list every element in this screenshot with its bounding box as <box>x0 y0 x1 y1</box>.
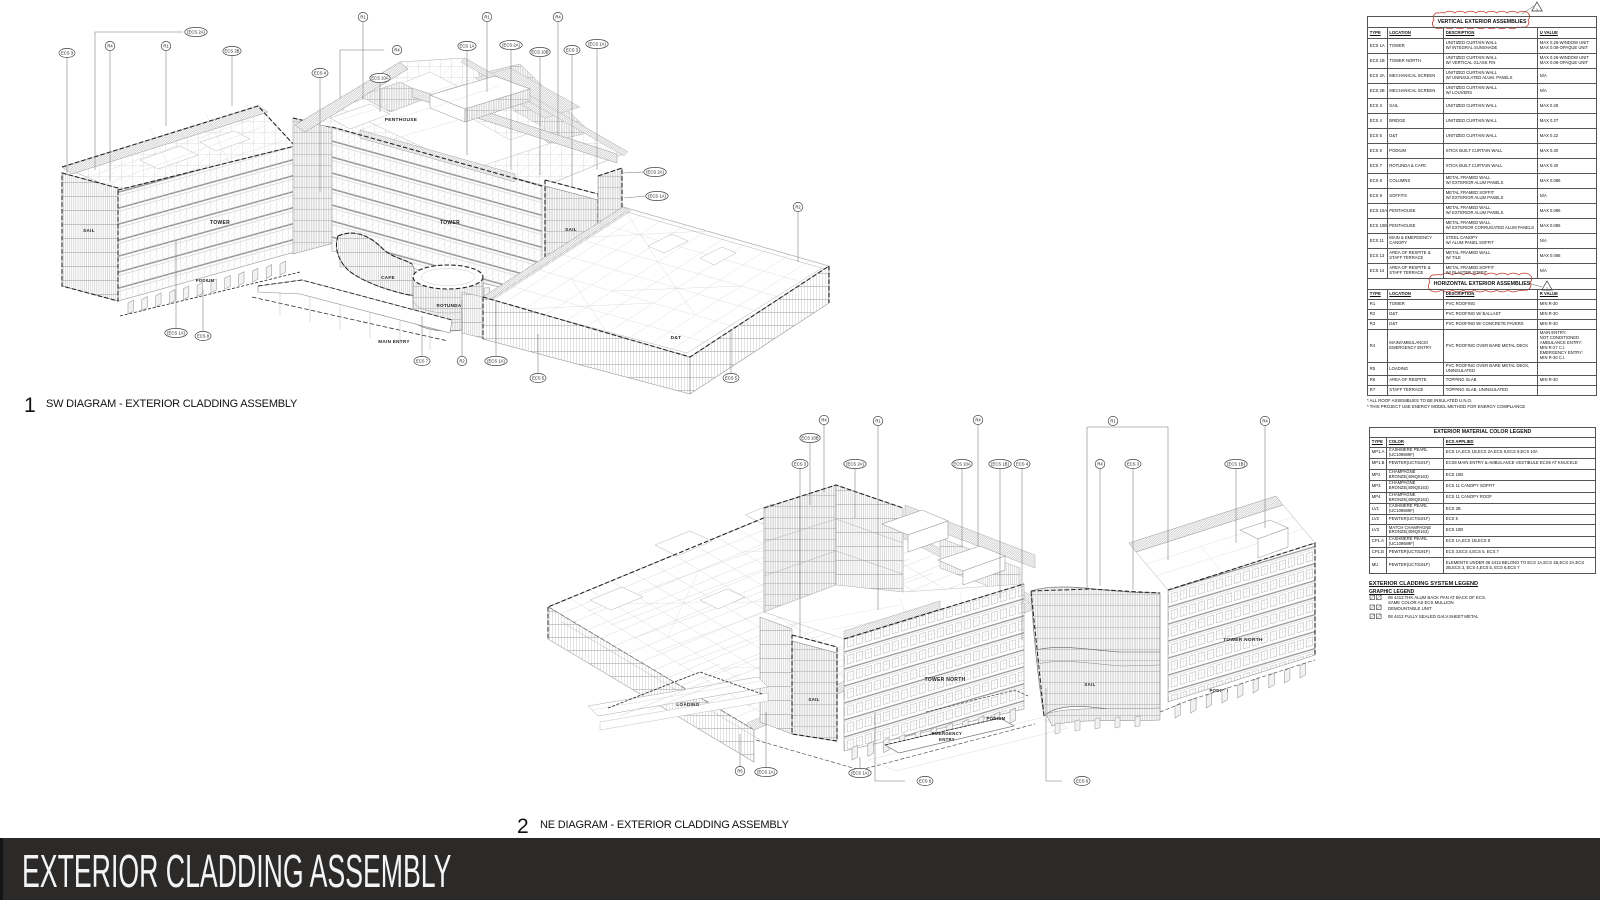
svg-text:(ECS 1B): (ECS 1B) <box>991 462 1009 467</box>
svg-text:R1: R1 <box>1110 419 1116 424</box>
svg-text:R4: R4 <box>1097 462 1103 467</box>
svg-text:MAIN ENTRY: MAIN ENTRY <box>378 339 409 344</box>
svg-text:R2: R2 <box>459 359 465 364</box>
svg-text:R4: R4 <box>394 48 400 53</box>
svg-text:ECS 10A: ECS 10A <box>953 462 970 467</box>
svg-text:(ECS 1A): (ECS 1A) <box>648 194 666 199</box>
svg-text:SAIL: SAIL <box>83 228 95 233</box>
svg-text:ECS 6: ECS 6 <box>1076 779 1089 784</box>
svg-text:SAIL: SAIL <box>808 697 819 702</box>
svg-text:EMERGENCY: EMERGENCY <box>932 731 962 736</box>
svg-text:ECS 3: ECS 3 <box>566 48 579 53</box>
svg-text:R1: R1 <box>875 419 881 424</box>
svg-text:ECS 8: ECS 8 <box>197 334 210 339</box>
svg-text:(ECS 2A): (ECS 2A) <box>646 170 664 175</box>
svg-text:R1: R1 <box>163 44 169 49</box>
svg-text:ECS 10B: ECS 10B <box>531 50 548 55</box>
svg-text:1: 1 <box>1536 7 1539 12</box>
svg-text:R4: R4 <box>975 418 981 423</box>
svg-text:(ECS 2A): (ECS 2A) <box>846 462 864 467</box>
svg-text:R5: R5 <box>737 769 743 774</box>
svg-text:ECS 3: ECS 3 <box>61 51 74 56</box>
svg-text:(ECS 1A): (ECS 1A) <box>167 331 185 336</box>
svg-text:ECS 4: ECS 4 <box>314 71 327 76</box>
svg-text:ECS 2B: ECS 2B <box>225 49 240 54</box>
svg-text:(ECS 2A): (ECS 2A) <box>187 30 205 35</box>
svg-text:ECS 1A: ECS 1A <box>460 44 475 49</box>
svg-text:(ECS 1B): (ECS 1B) <box>1227 462 1245 467</box>
svg-text:TOWER: TOWER <box>210 220 230 226</box>
svg-text:ECS 4: ECS 4 <box>1016 462 1029 467</box>
svg-text:(ECS 2A): (ECS 2A) <box>502 43 520 48</box>
svg-text:R1: R1 <box>484 15 490 20</box>
svg-text:R4: R4 <box>107 44 113 49</box>
svg-text:R2: R2 <box>795 205 801 210</box>
svg-text:D&T: D&T <box>671 335 682 341</box>
svg-text:R4: R4 <box>821 418 827 423</box>
svg-text:SAIL: SAIL <box>565 227 577 232</box>
svg-text:ECS 5: ECS 5 <box>532 376 545 381</box>
svg-text:R4: R4 <box>555 15 561 20</box>
svg-text:PENTHOUSE: PENTHOUSE <box>385 117 418 123</box>
svg-text:ECS 10B: ECS 10B <box>801 436 818 441</box>
svg-text:PODIUM: PODIUM <box>196 278 215 283</box>
svg-text:LOADING: LOADING <box>676 702 699 707</box>
svg-text:R4: R4 <box>1262 419 1268 424</box>
svg-text:(ECS 1A): (ECS 1A) <box>588 42 606 47</box>
svg-text:ECS 3: ECS 3 <box>794 462 807 467</box>
svg-text:(ECS 1A): (ECS 1A) <box>757 770 775 775</box>
svg-text:ECS 3: ECS 3 <box>1127 462 1140 467</box>
svg-text:R1: R1 <box>360 15 366 20</box>
svg-text:(ECS 1A): (ECS 1A) <box>487 359 505 364</box>
svg-text:TOWER: TOWER <box>440 220 460 226</box>
svg-text:ROTUNDA: ROTUNDA <box>436 303 461 308</box>
svg-text:TOWER NORTH: TOWER NORTH <box>925 677 966 683</box>
svg-text:ECS 5: ECS 5 <box>725 376 738 381</box>
svg-text:ECS 10A: ECS 10A <box>371 76 388 81</box>
svg-text:(ECS 1A): (ECS 1A) <box>851 771 869 776</box>
svg-text:TOWER NORTH: TOWER NORTH <box>1223 637 1263 643</box>
svg-text:ENTRY: ENTRY <box>939 737 955 742</box>
svg-text:CAFE: CAFE <box>381 275 395 280</box>
svg-text:ECS 6: ECS 6 <box>919 779 932 784</box>
svg-text:SAIL: SAIL <box>1084 682 1095 687</box>
svg-text:PODIUM: PODIUM <box>987 716 1006 721</box>
svg-text:ECS 7: ECS 7 <box>416 359 429 364</box>
